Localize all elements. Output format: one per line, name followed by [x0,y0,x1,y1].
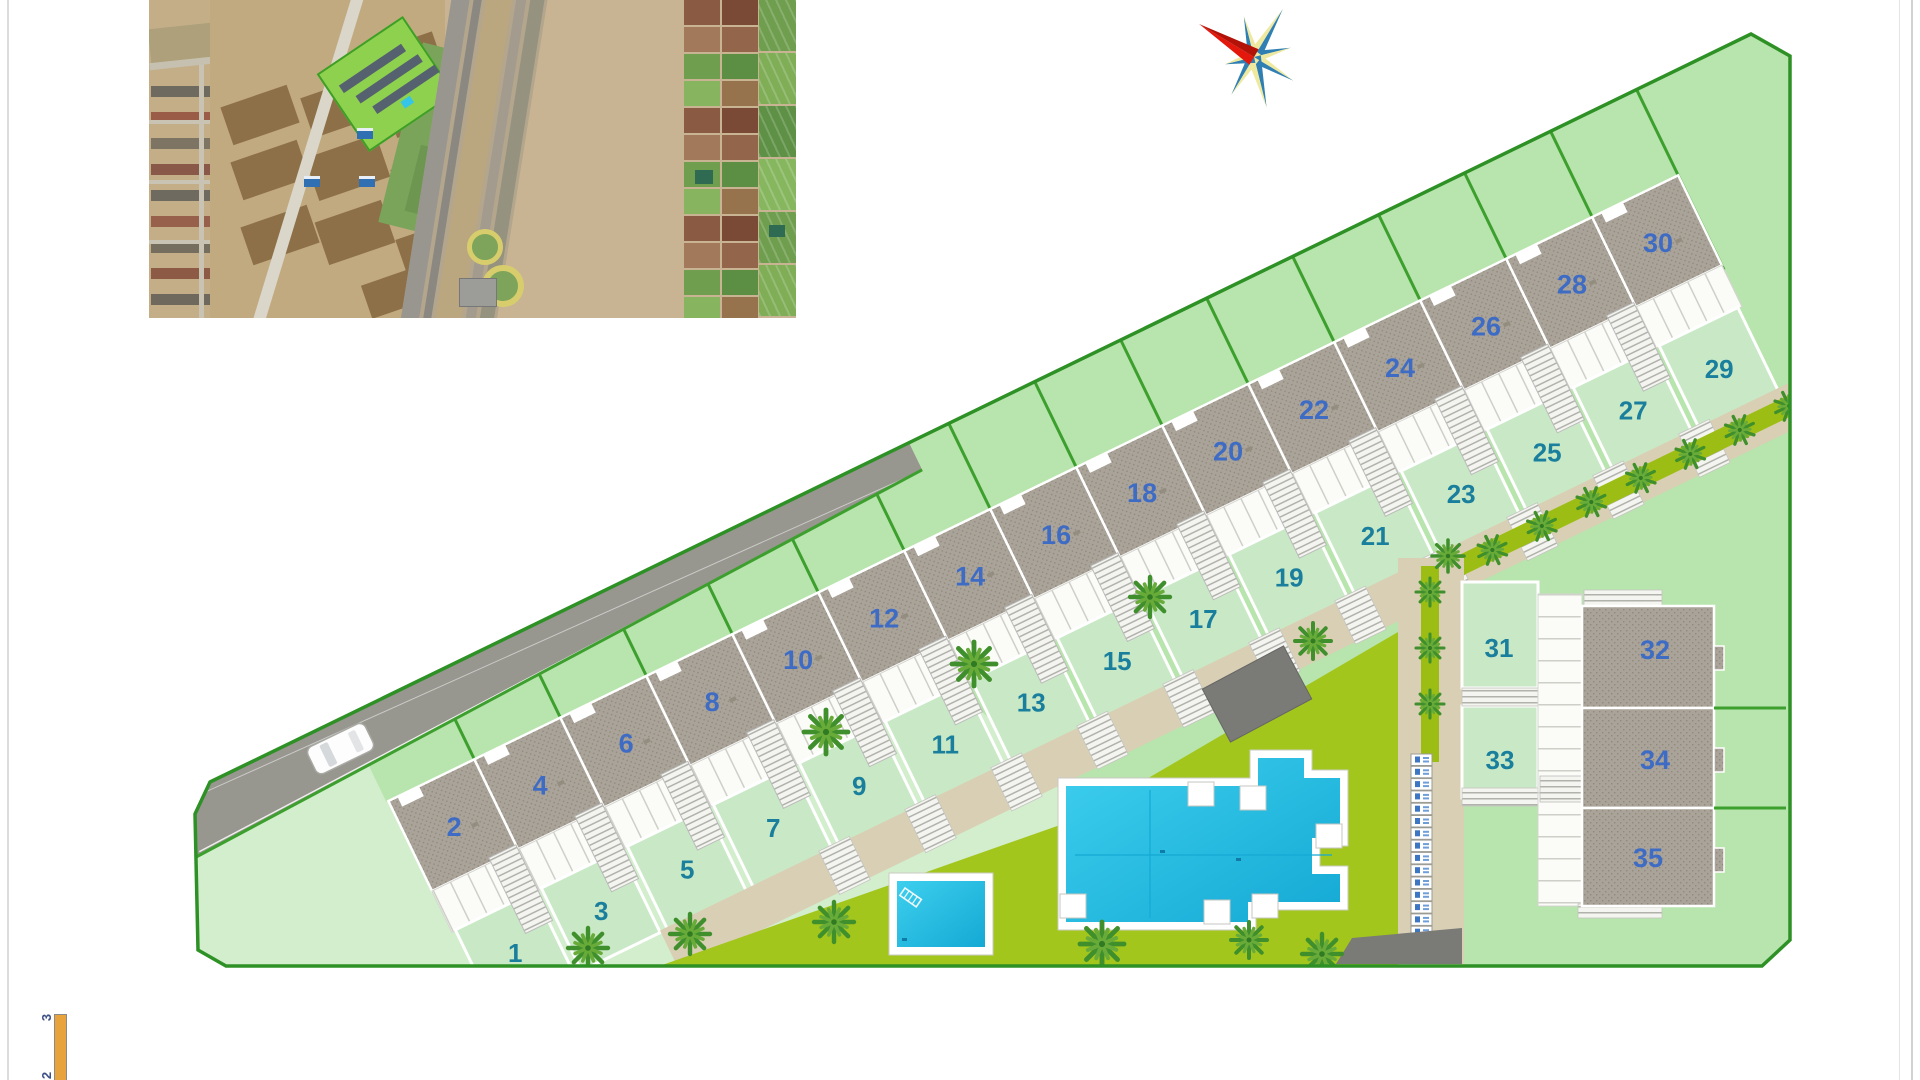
building-number-label: 12 [869,603,899,633]
parking-cell [1411,877,1432,889]
pool-platform [1204,900,1230,924]
garden-number-label: 11 [931,729,959,759]
palm-tree-icon [1302,934,1342,974]
building-number-label: 16 [1041,520,1071,550]
building-number-label: 30 [1643,228,1673,258]
palm-tree-icon [568,928,608,968]
building-number-label: 14 [955,562,985,592]
building-number-label: 8 [705,687,720,717]
palm-tree-icon [1416,634,1444,662]
parking-cell [1411,914,1432,926]
parking-cell [1411,840,1432,852]
parking-cell [1411,828,1432,840]
garden-number-label: 29 [1705,354,1734,384]
palm-tree-icon [804,710,848,754]
masterplan-drawing: 2468101214161820222426283013579111315171… [0,0,1920,1080]
palm-tree-icon [1080,922,1124,966]
palm-tree-icon [1416,578,1444,606]
garden-number-label: 19 [1275,562,1304,592]
building-number-label: 35 [1633,843,1663,873]
compass-rose-icon [1191,0,1309,120]
building-number-label: 32 [1640,635,1670,665]
parking-cell [1411,766,1432,778]
parking-cell [1411,779,1432,791]
garden-number-label: 21 [1361,521,1390,551]
palm-tree-icon [1231,922,1267,958]
palm-tree-icon [1432,540,1464,572]
parking-cell [1411,816,1432,828]
building-number-label: 2 [447,812,462,842]
scale-top-label: 3 [39,1014,54,1021]
site-area [156,34,1916,1080]
pool-platform [1240,786,1266,810]
pool-platform [1252,894,1278,918]
pool-platform [1188,782,1214,806]
scale-bar-rule [54,1014,67,1080]
garden-number-label: 23 [1447,479,1476,509]
garden-number-label: 27 [1619,396,1648,426]
parking-cell [1411,791,1432,803]
garden-number-label: 33 [1486,745,1515,775]
building-number-label: 24 [1385,353,1415,383]
garden-number-label: 13 [1017,688,1046,718]
scale-bottom-label: 2 [39,1072,54,1079]
building-number-label: 26 [1471,311,1501,341]
parking-cell [1411,803,1432,815]
building-number-label: 20 [1213,437,1243,467]
parking-cell [1411,889,1432,901]
building-number-label: 28 [1557,270,1587,300]
building-number-label: 10 [783,645,813,675]
palm-tree-icon [1868,338,1908,378]
parking-cell [1411,865,1432,877]
palm-tree-icon [1416,690,1444,718]
building-number-label: 6 [619,729,634,759]
building-number-label: 34 [1640,745,1670,775]
garden-number-label: 7 [766,813,780,843]
garden-number-label: 5 [680,855,694,885]
parking-cell [1411,852,1432,864]
garden-number-label: 17 [1189,604,1218,634]
palm-tree-icon [814,902,854,942]
parking-cell [1411,754,1432,766]
scale-bar: 3 2 [40,1004,80,1080]
garden-number-label: 9 [852,771,866,801]
palm-tree-icon [1295,623,1331,659]
palm-tree-icon [1130,577,1170,617]
garden-number-label: 15 [1103,646,1132,676]
site-plan-page: 2468101214161820222426283013579111315171… [0,0,1920,1080]
palm-tree-icon [670,914,710,954]
garden-number-label: 1 [508,938,522,968]
pool-platform [1316,824,1342,848]
palm-tree-icon [952,642,996,686]
building-number-label: 18 [1127,478,1157,508]
garden-number-label: 3 [594,896,608,926]
pool-platform [1060,894,1086,918]
parking-cell [1411,902,1432,914]
palm-tree-icon [1819,362,1859,402]
building-number-label: 4 [533,770,548,800]
garden-number-label: 31 [1485,633,1514,663]
garden-number-label: 25 [1533,437,1562,467]
building-number-label: 22 [1299,395,1329,425]
